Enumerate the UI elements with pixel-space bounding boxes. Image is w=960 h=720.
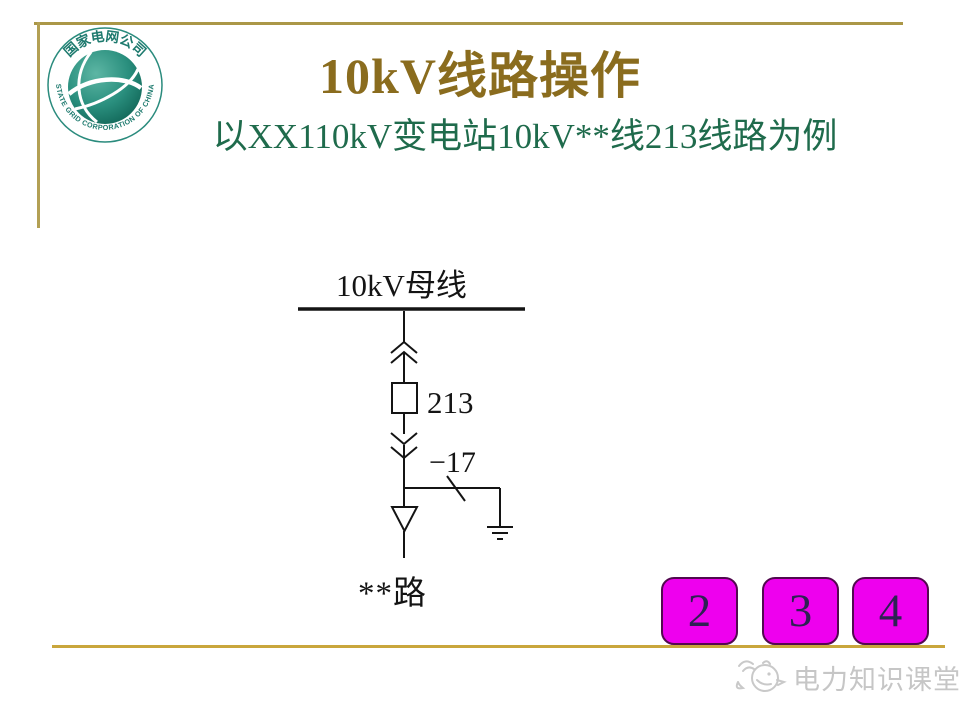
feeder-arrow-symbol	[392, 507, 417, 531]
nav-button-2[interactable]: 2	[661, 577, 738, 645]
bottom-gold-rule	[52, 645, 945, 648]
circuit-breaker-symbol	[392, 383, 417, 413]
drawout-chevron-down-1	[391, 433, 417, 444]
watermark-text: 电力知识课堂	[793, 658, 960, 697]
earthing-switch-label: −17	[429, 446, 476, 480]
presentation-slide: 国家电网公司 STATE GRID CORPORATION OF CHINA 1…	[0, 0, 960, 720]
nav-button-3[interactable]: 3	[762, 577, 839, 645]
chick-watermark-icon	[733, 655, 791, 697]
watermark: 电力知识课堂	[733, 652, 953, 700]
nav-button-4[interactable]: 4	[852, 577, 929, 645]
bus-label: 10kV母线	[336, 260, 467, 305]
feeder-name-label: **路	[358, 566, 427, 614]
breaker-number-label: 213	[427, 385, 474, 421]
